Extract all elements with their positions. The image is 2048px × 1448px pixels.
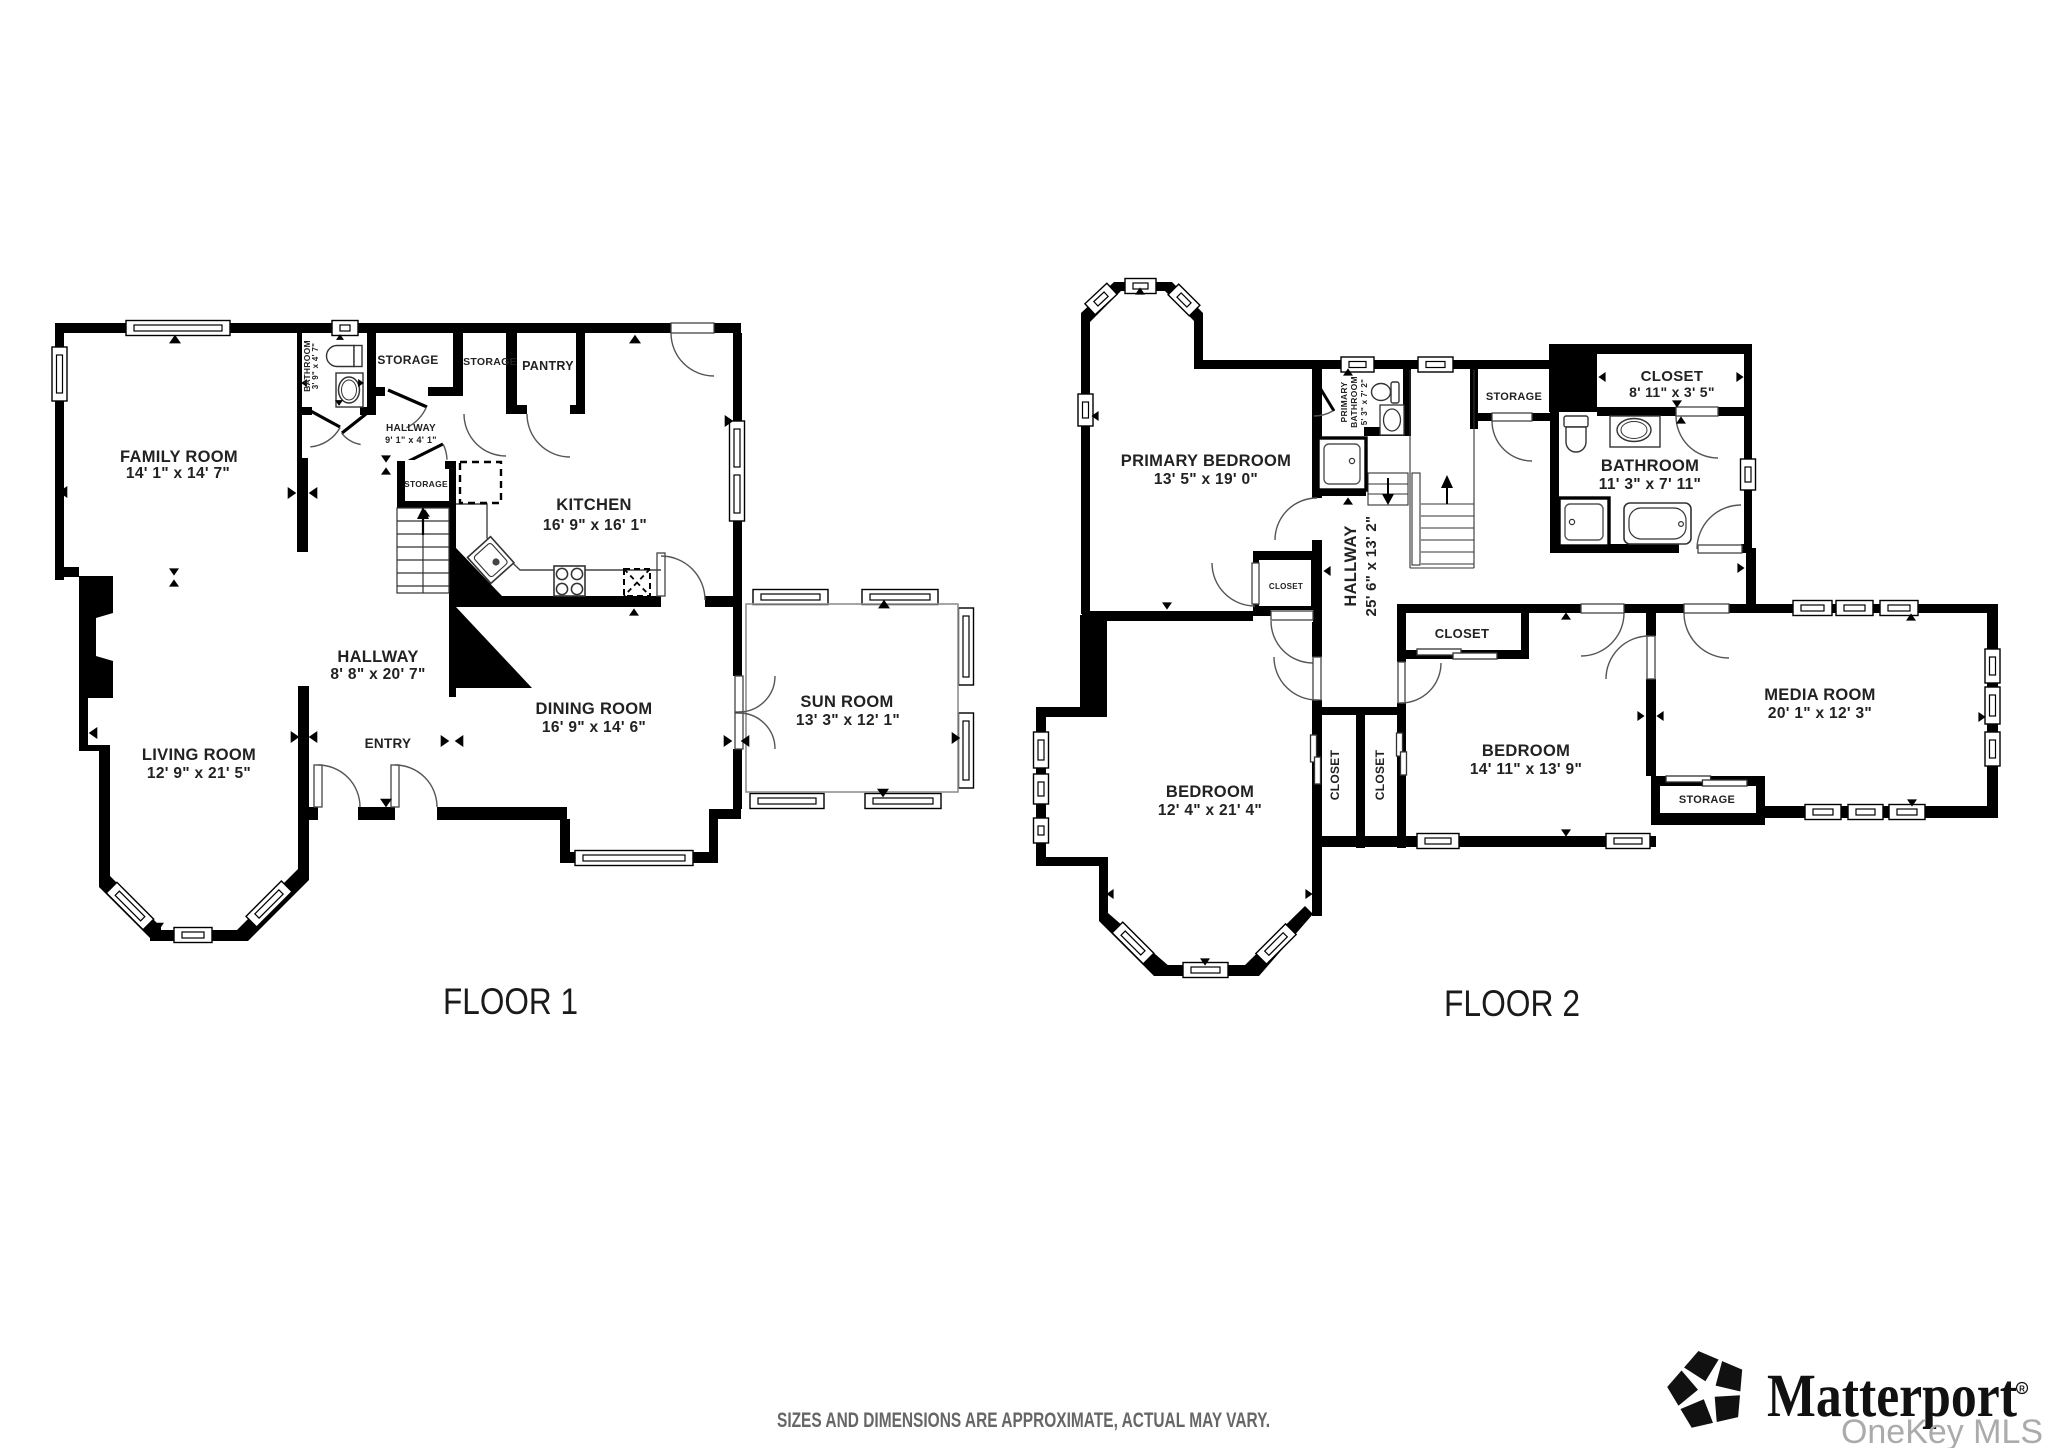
svg-text:FLOOR 2: FLOOR 2 bbox=[1444, 983, 1580, 1024]
svg-text:BEDROOM: BEDROOM bbox=[1482, 742, 1570, 760]
svg-text:STORAGE: STORAGE bbox=[404, 479, 448, 489]
svg-text:14' 1" x 14' 7": 14' 1" x 14' 7" bbox=[126, 465, 230, 482]
svg-text:HALLWAY: HALLWAY bbox=[1342, 525, 1360, 606]
svg-text:CLOSET: CLOSET bbox=[1373, 749, 1387, 800]
svg-text:11' 3" x 7' 11": 11' 3" x 7' 11" bbox=[1599, 476, 1701, 493]
svg-text:STORAGE: STORAGE bbox=[1486, 391, 1542, 403]
svg-text:STORAGE: STORAGE bbox=[1679, 794, 1735, 806]
svg-text:KITCHEN: KITCHEN bbox=[556, 496, 631, 514]
svg-text:CLOSET: CLOSET bbox=[1435, 626, 1490, 641]
svg-text:12' 9" x 21' 5": 12' 9" x 21' 5" bbox=[147, 765, 251, 782]
svg-text:BATHROOM: BATHROOM bbox=[1601, 457, 1699, 475]
svg-text:PANTRY: PANTRY bbox=[522, 359, 574, 373]
svg-text:LIVING ROOM: LIVING ROOM bbox=[142, 746, 256, 764]
svg-text:12' 4" x 21' 4": 12' 4" x 21' 4" bbox=[1158, 802, 1262, 819]
svg-text:8' 11" x 3' 5": 8' 11" x 3' 5" bbox=[1629, 384, 1715, 400]
svg-text:PRIMARY: PRIMARY bbox=[1339, 381, 1349, 422]
svg-text:25' 6" x 13' 2": 25' 6" x 13' 2" bbox=[1363, 516, 1380, 617]
svg-text:13' 3" x 12' 1": 13' 3" x 12' 1" bbox=[796, 712, 900, 729]
svg-text:FAMILY ROOM: FAMILY ROOM bbox=[120, 448, 238, 466]
svg-text:13' 5" x 19' 0": 13' 5" x 19' 0" bbox=[1154, 471, 1258, 488]
svg-text:CLOSET: CLOSET bbox=[1269, 582, 1303, 591]
svg-text:R: R bbox=[2019, 1385, 2025, 1394]
svg-text:OneKey MLS: OneKey MLS bbox=[1841, 1413, 2043, 1448]
svg-text:PRIMARY BEDROOM: PRIMARY BEDROOM bbox=[1121, 452, 1291, 470]
svg-text:BATHROOM: BATHROOM bbox=[1349, 376, 1359, 428]
svg-text:9' 1" x 4' 1": 9' 1" x 4' 1" bbox=[385, 435, 437, 445]
svg-text:MEDIA ROOM: MEDIA ROOM bbox=[1764, 686, 1875, 704]
svg-text:HALLWAY: HALLWAY bbox=[386, 423, 436, 434]
svg-text:SUN ROOM: SUN ROOM bbox=[800, 693, 893, 711]
svg-text:5' 3" x 7' 2": 5' 3" x 7' 2" bbox=[1360, 379, 1369, 425]
svg-text:BEDROOM: BEDROOM bbox=[1166, 783, 1254, 801]
svg-text:8' 8" x 20' 7": 8' 8" x 20' 7" bbox=[330, 666, 425, 683]
svg-text:20' 1" x 12' 3": 20' 1" x 12' 3" bbox=[1768, 705, 1872, 722]
svg-text:16' 9" x 14' 6": 16' 9" x 14' 6" bbox=[542, 719, 646, 736]
svg-text:14' 11" x 13' 9": 14' 11" x 13' 9" bbox=[1470, 761, 1582, 778]
svg-text:STORAGE: STORAGE bbox=[463, 356, 517, 368]
svg-text:SIZES AND DIMENSIONS ARE APPRO: SIZES AND DIMENSIONS ARE APPROXIMATE, AC… bbox=[777, 1409, 1270, 1432]
svg-text:HALLWAY: HALLWAY bbox=[337, 648, 418, 666]
svg-text:CLOSET: CLOSET bbox=[1641, 368, 1704, 385]
svg-text:3' 9" x 4' 7": 3' 9" x 4' 7" bbox=[311, 343, 320, 389]
svg-text:FLOOR 1: FLOOR 1 bbox=[443, 981, 578, 1022]
svg-text:DINING ROOM: DINING ROOM bbox=[536, 700, 653, 718]
svg-text:STORAGE: STORAGE bbox=[377, 353, 438, 367]
svg-text:CLOSET: CLOSET bbox=[1328, 749, 1342, 800]
svg-text:ENTRY: ENTRY bbox=[365, 736, 412, 751]
svg-text:16' 9" x 16' 1": 16' 9" x 16' 1" bbox=[543, 517, 647, 534]
